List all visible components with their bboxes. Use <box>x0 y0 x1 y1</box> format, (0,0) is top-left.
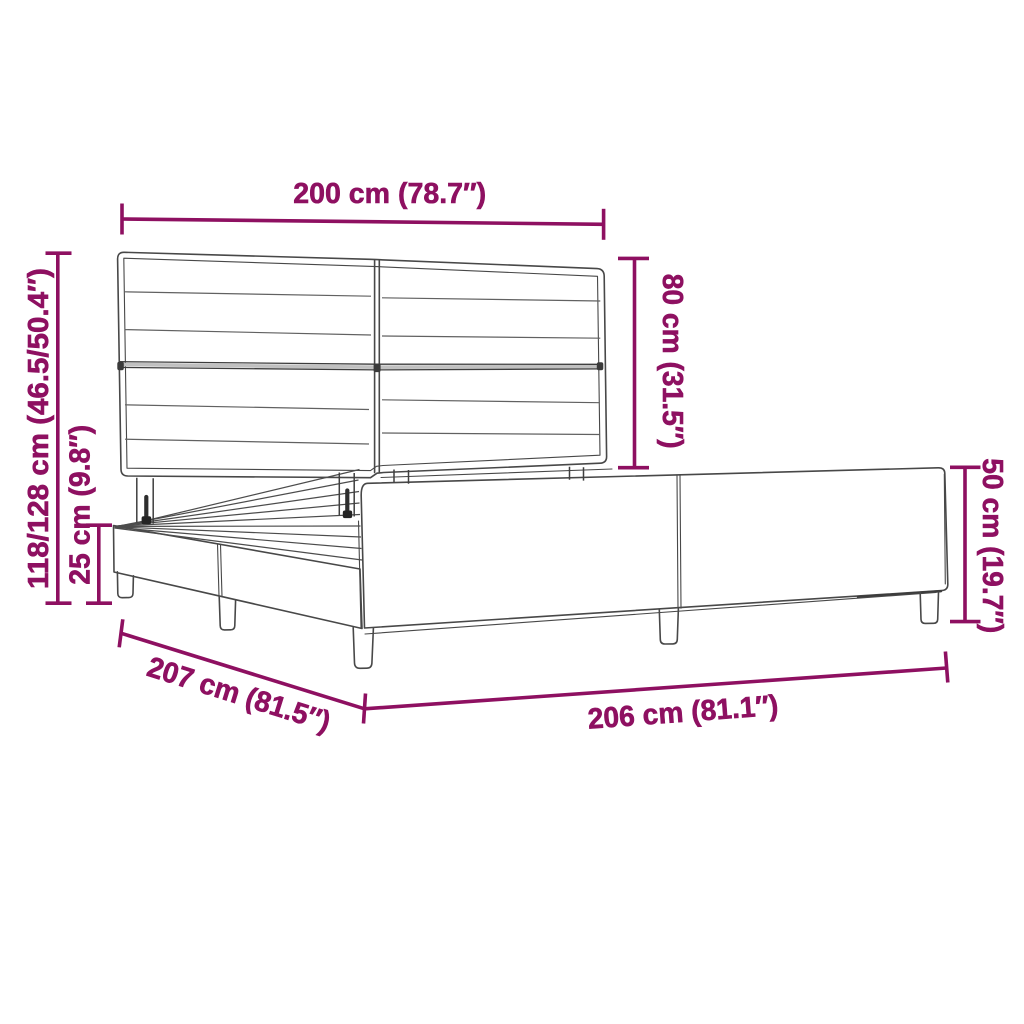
svg-text:200 cm (78.7″): 200 cm (78.7″) <box>293 178 486 210</box>
svg-text:80 cm (31.5″): 80 cm (31.5″) <box>656 274 688 449</box>
svg-text:25 cm (9.8″): 25 cm (9.8″) <box>65 425 97 585</box>
svg-text:50 cm (19.7″): 50 cm (19.7″) <box>976 458 1008 633</box>
svg-text:118/128 cm (46.5/50.4″): 118/128 cm (46.5/50.4″) <box>23 268 55 589</box>
